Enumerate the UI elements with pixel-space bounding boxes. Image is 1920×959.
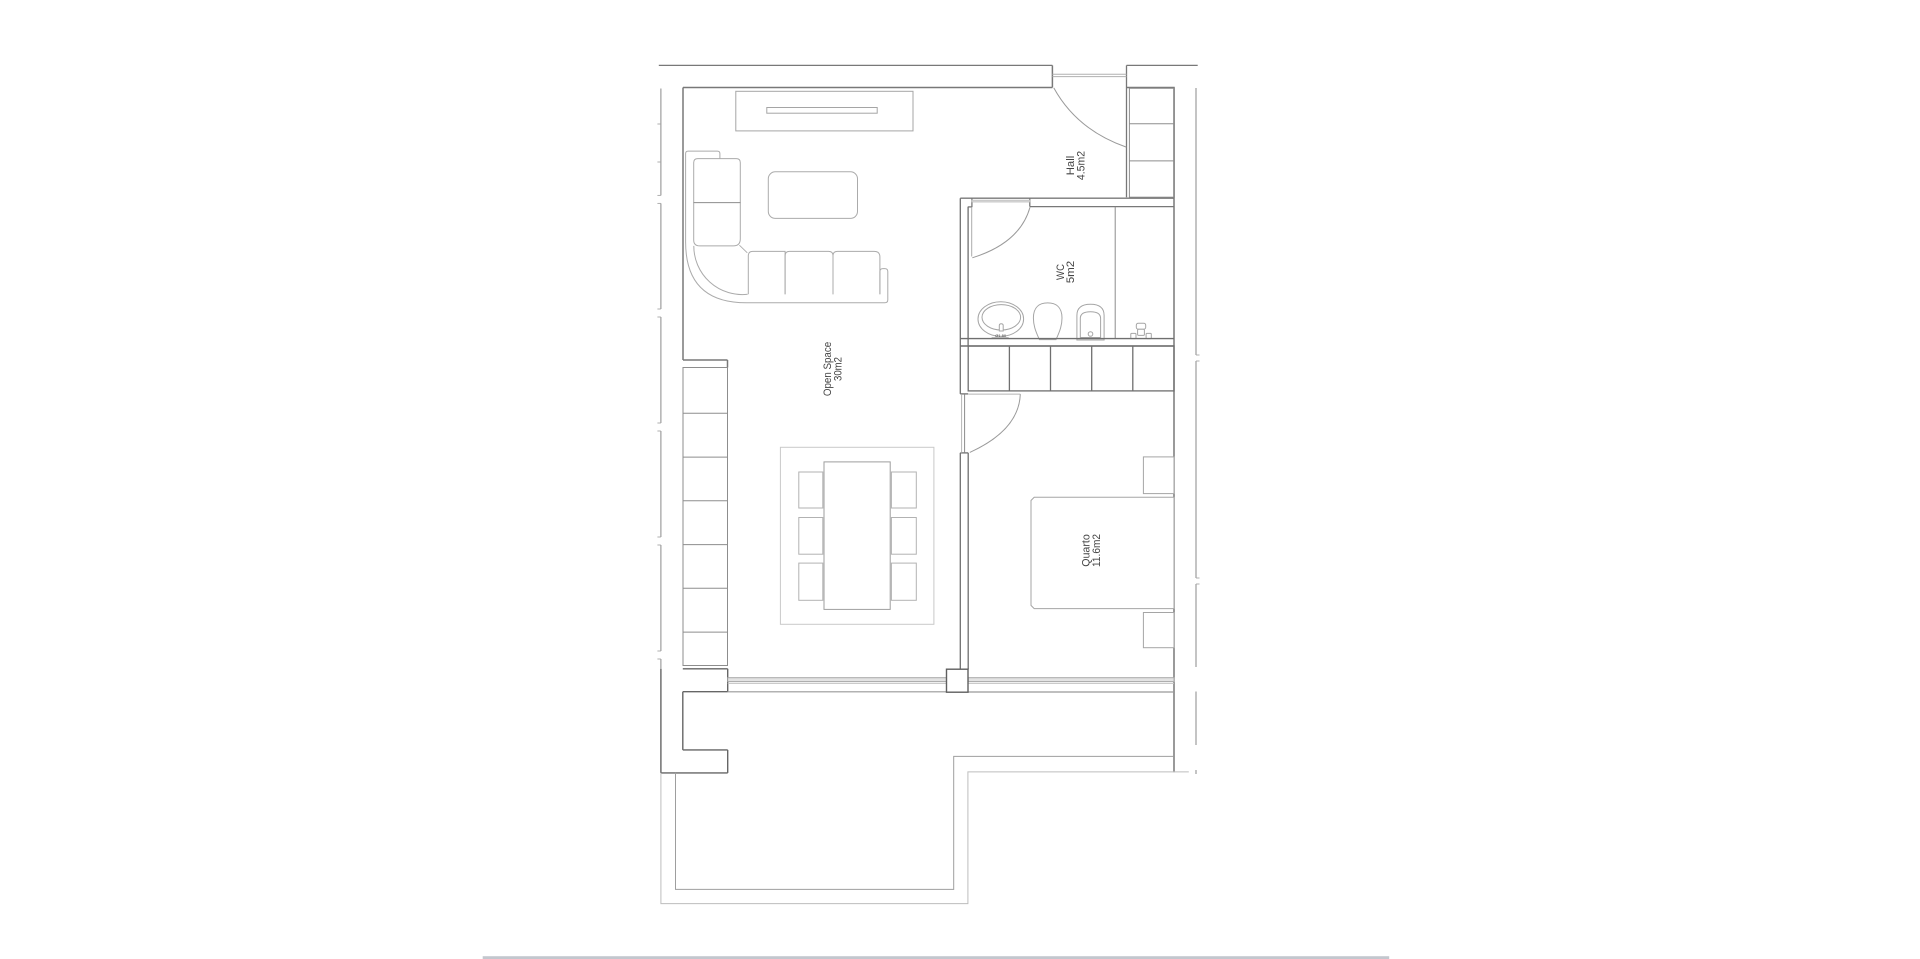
svg-text:5m2: 5m2 bbox=[1065, 261, 1077, 284]
svg-text:11.6m2: 11.6m2 bbox=[1091, 534, 1103, 567]
svg-text:4.5m2: 4.5m2 bbox=[1076, 151, 1088, 180]
svg-text:Ø1.50: Ø1.50 bbox=[995, 333, 1007, 338]
svg-text:30m2: 30m2 bbox=[833, 357, 845, 381]
